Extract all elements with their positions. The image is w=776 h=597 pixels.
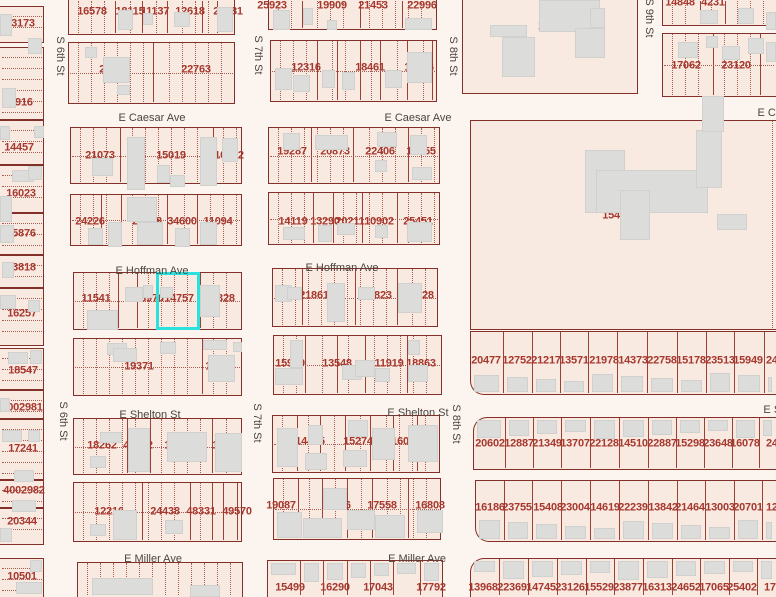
building bbox=[620, 190, 650, 240]
building bbox=[305, 453, 327, 470]
street-label: E Hoffman Ave bbox=[116, 265, 189, 277]
building bbox=[479, 520, 500, 539]
building bbox=[509, 420, 529, 436]
building bbox=[174, 12, 190, 27]
building bbox=[592, 374, 613, 392]
building bbox=[343, 450, 367, 467]
building bbox=[766, 42, 776, 62]
building bbox=[322, 70, 335, 88]
building bbox=[208, 355, 235, 382]
building bbox=[217, 7, 233, 32]
street-label: E Shelton St bbox=[119, 409, 180, 421]
building bbox=[748, 38, 764, 54]
building bbox=[722, 46, 740, 60]
parcel-label[interactable]: 15529 bbox=[584, 582, 614, 595]
parcel-label[interactable]: 14373 bbox=[618, 355, 648, 368]
parcel-label[interactable]: 13707 bbox=[560, 438, 590, 451]
building bbox=[157, 165, 170, 183]
building bbox=[100, 432, 122, 443]
lot-line bbox=[120, 128, 121, 182]
lot-line bbox=[2, 331, 42, 332]
street-label: E Shelton St bbox=[387, 407, 448, 419]
building bbox=[424, 563, 439, 581]
parcel-label[interactable]: 4002982 bbox=[3, 485, 44, 498]
selected-parcel-highlight bbox=[156, 272, 200, 330]
parcel-label[interactable]: 12316 bbox=[291, 62, 321, 75]
building bbox=[287, 287, 302, 300]
street-label: S 8th St bbox=[447, 36, 459, 75]
building bbox=[0, 225, 14, 243]
parcel-label[interactable]: 21217 bbox=[531, 355, 561, 368]
building bbox=[275, 68, 292, 90]
building bbox=[651, 378, 673, 392]
building bbox=[704, 561, 725, 574]
building bbox=[170, 175, 185, 187]
building bbox=[125, 287, 143, 302]
building bbox=[681, 525, 701, 539]
building bbox=[0, 14, 12, 36]
building bbox=[2, 430, 22, 442]
building bbox=[348, 420, 368, 437]
parcel-label[interactable]: 23648 bbox=[703, 438, 733, 451]
building bbox=[374, 563, 389, 576]
lot-line bbox=[2, 57, 42, 58]
building bbox=[536, 379, 556, 392]
lot-line bbox=[763, 1, 764, 24]
building bbox=[28, 430, 40, 442]
parcel-label[interactable]: 19087 bbox=[266, 500, 296, 513]
lot-line bbox=[395, 1, 396, 28]
building bbox=[565, 526, 586, 539]
parcel-label[interactable]: 15499 bbox=[275, 582, 305, 595]
building bbox=[283, 133, 300, 150]
building bbox=[113, 510, 137, 540]
building bbox=[271, 563, 296, 575]
parcel-label[interactable]: 22758 bbox=[647, 355, 677, 368]
building bbox=[160, 342, 176, 354]
parcel-label[interactable]: 12 bbox=[766, 502, 776, 515]
building bbox=[337, 223, 355, 235]
building bbox=[405, 18, 432, 30]
building bbox=[203, 340, 227, 350]
building bbox=[315, 135, 348, 150]
building bbox=[0, 528, 12, 542]
street-label: E Caesar Ave bbox=[757, 107, 776, 119]
parcel-label[interactable]: 17 bbox=[764, 582, 776, 595]
lot-line bbox=[145, 128, 146, 182]
parcel-label[interactable]: 13842 bbox=[648, 502, 678, 515]
parcel-label[interactable]: 15408 bbox=[533, 502, 563, 515]
lot-line bbox=[2, 68, 42, 69]
lot-line bbox=[353, 128, 354, 182]
parcel-label[interactable]: 15019 bbox=[156, 150, 186, 163]
building bbox=[736, 420, 755, 438]
building bbox=[117, 85, 130, 95]
building bbox=[398, 283, 422, 313]
lot-line bbox=[87, 563, 88, 595]
parcel-label[interactable]: 14510 bbox=[618, 438, 648, 451]
building bbox=[30, 350, 42, 364]
building bbox=[88, 228, 103, 245]
building bbox=[12, 500, 36, 512]
building bbox=[215, 433, 242, 472]
building bbox=[8, 352, 28, 364]
building bbox=[0, 398, 10, 412]
building bbox=[190, 585, 220, 597]
building bbox=[16, 582, 42, 594]
building bbox=[127, 137, 145, 190]
parcel-label[interactable]: 17065 bbox=[699, 582, 729, 595]
parcel-label[interactable]: 24652 bbox=[671, 582, 701, 595]
parcel-label[interactable]: 20602 bbox=[475, 438, 505, 451]
building bbox=[652, 523, 673, 539]
parcel-label[interactable]: 23120 bbox=[721, 60, 751, 73]
building bbox=[768, 377, 772, 392]
building bbox=[474, 375, 499, 392]
building bbox=[303, 518, 342, 538]
building bbox=[277, 428, 298, 467]
lot-line bbox=[291, 1, 292, 28]
parcel-label[interactable]: 34600 bbox=[167, 216, 197, 229]
building bbox=[532, 561, 553, 577]
parcel-label[interactable]: 16290 bbox=[320, 582, 350, 595]
building bbox=[28, 38, 42, 54]
parcel-label[interactable]: 22763 bbox=[181, 64, 211, 77]
parcel-label[interactable]: 16578 bbox=[77, 6, 107, 19]
parcel-label[interactable]: 23126 bbox=[555, 582, 585, 595]
building bbox=[358, 287, 375, 300]
building bbox=[537, 420, 557, 434]
parcel-label[interactable]: 20344 bbox=[7, 516, 37, 529]
parcel-label[interactable]: 4231 bbox=[701, 0, 725, 10]
parcel-label[interactable]: 15178 bbox=[676, 355, 706, 368]
parcel-label[interactable]: 17062 bbox=[671, 60, 701, 73]
building bbox=[590, 561, 610, 573]
building bbox=[377, 132, 397, 147]
lot-line bbox=[397, 193, 398, 243]
building bbox=[564, 381, 584, 392]
parcel-label[interactable]: 20477 bbox=[471, 355, 501, 368]
building bbox=[766, 522, 772, 539]
parcel-label[interactable]: 18547 bbox=[8, 365, 38, 378]
parcel-label[interactable]: 15949 bbox=[733, 355, 763, 368]
lot-line bbox=[165, 563, 166, 595]
building bbox=[127, 197, 157, 222]
building bbox=[676, 561, 696, 576]
building bbox=[103, 57, 130, 83]
parcel-label[interactable]: 13003 bbox=[705, 502, 735, 515]
street-label: E Caesar Ave bbox=[118, 112, 185, 124]
parcel-label[interactable]: 17792 bbox=[416, 582, 446, 595]
building bbox=[143, 13, 153, 25]
building bbox=[594, 528, 615, 539]
building bbox=[90, 524, 106, 536]
parcel-label[interactable]: 21453 bbox=[358, 0, 388, 13]
street-label: E Caesar Ave bbox=[384, 112, 451, 124]
building bbox=[647, 561, 668, 578]
building bbox=[143, 285, 153, 298]
building bbox=[290, 340, 303, 368]
building bbox=[407, 52, 432, 83]
building bbox=[710, 373, 730, 392]
lot-line bbox=[772, 121, 773, 328]
parcel-label[interactable]: 14619 bbox=[590, 502, 620, 515]
building bbox=[761, 561, 772, 579]
building bbox=[702, 96, 724, 132]
parcel-label[interactable]: 14745 bbox=[526, 582, 556, 595]
building bbox=[596, 170, 708, 213]
building bbox=[590, 8, 605, 28]
parcel-label[interactable]: 19909 bbox=[317, 0, 347, 13]
parcel-label[interactable]: 22369 bbox=[497, 582, 527, 595]
building bbox=[2, 262, 14, 278]
building bbox=[92, 578, 153, 595]
building bbox=[503, 561, 524, 579]
building bbox=[327, 20, 337, 30]
building bbox=[738, 520, 758, 539]
building bbox=[327, 563, 343, 580]
parcel-label[interactable]: 25402 bbox=[727, 582, 757, 595]
street-label: E Hoffman Ave bbox=[306, 262, 379, 274]
building bbox=[375, 368, 390, 382]
lot-line bbox=[80, 128, 81, 182]
building bbox=[222, 138, 238, 162]
building bbox=[372, 428, 395, 460]
lot-line bbox=[434, 193, 435, 243]
parcel-label[interactable]: 22887 bbox=[647, 438, 677, 451]
building bbox=[706, 36, 718, 48]
building bbox=[175, 228, 190, 247]
building bbox=[14, 470, 34, 482]
building bbox=[0, 196, 12, 222]
parcel-label[interactable]: 23513 bbox=[705, 355, 735, 368]
parcel-label[interactable]: 16078 bbox=[730, 438, 760, 451]
parcel-label[interactable]: 16313 bbox=[642, 582, 672, 595]
building bbox=[561, 561, 582, 575]
parcel-label[interactable]: 22996 bbox=[407, 0, 437, 13]
building bbox=[652, 420, 672, 435]
parcel-label[interactable]: 21349 bbox=[532, 438, 562, 451]
building bbox=[277, 512, 302, 538]
building bbox=[385, 70, 402, 88]
building bbox=[30, 560, 42, 572]
parcel-label[interactable]: 15298 bbox=[675, 438, 705, 451]
parcel-label[interactable]: 24 bbox=[766, 355, 776, 368]
lot-line bbox=[197, 128, 198, 182]
building bbox=[90, 456, 106, 468]
building bbox=[477, 420, 501, 438]
lot-line bbox=[2, 223, 42, 224]
building bbox=[618, 561, 639, 580]
lot-line bbox=[208, 1, 209, 33]
street-label: S 6th St bbox=[54, 36, 66, 75]
lot-line bbox=[161, 419, 162, 473]
street-label: E Shelton St bbox=[763, 404, 776, 416]
map-canvas[interactable]: 2317310916144571602325876238181625718547… bbox=[0, 0, 776, 597]
building bbox=[375, 160, 387, 172]
building bbox=[375, 515, 405, 538]
building bbox=[474, 561, 495, 572]
building bbox=[0, 295, 16, 309]
parcel-label[interactable]: 22128 bbox=[589, 438, 619, 451]
building bbox=[200, 285, 220, 317]
parcel-label[interactable]: 17043 bbox=[363, 582, 393, 595]
building bbox=[594, 420, 615, 439]
building bbox=[85, 47, 97, 58]
building bbox=[113, 348, 137, 362]
building bbox=[738, 375, 760, 392]
parcel-label[interactable]: 24 bbox=[766, 438, 776, 451]
parcel-label[interactable]: 19371 bbox=[124, 361, 154, 374]
parcel-label[interactable]: 22406 bbox=[365, 146, 395, 159]
parcel-label[interactable]: 11541 bbox=[82, 293, 111, 306]
parcel-label[interactable]: 23004 bbox=[560, 502, 590, 515]
building bbox=[408, 340, 420, 355]
building bbox=[733, 561, 753, 572]
building bbox=[417, 510, 443, 533]
building bbox=[92, 158, 113, 176]
building bbox=[275, 368, 303, 385]
building bbox=[407, 222, 432, 242]
parcel-label[interactable]: 14848 bbox=[665, 0, 695, 10]
building bbox=[575, 28, 605, 58]
building bbox=[565, 420, 586, 432]
building bbox=[28, 300, 40, 312]
parcel-label[interactable]: 13571 bbox=[559, 355, 589, 368]
building bbox=[738, 8, 754, 24]
building bbox=[766, 12, 776, 30]
building bbox=[118, 10, 133, 30]
building bbox=[408, 425, 438, 462]
building bbox=[680, 420, 700, 433]
parcel-label[interactable]: 17241 bbox=[8, 443, 38, 456]
parcel-label[interactable]: 24438 bbox=[150, 506, 180, 519]
lot-line bbox=[402, 1, 403, 28]
building bbox=[623, 420, 644, 437]
lot-line bbox=[83, 419, 84, 473]
building bbox=[293, 75, 310, 92]
building bbox=[137, 222, 163, 245]
building bbox=[709, 527, 730, 539]
street-label: E Miller Ave bbox=[388, 553, 446, 565]
street-label: S 8th St bbox=[450, 404, 462, 443]
parcel-label[interactable]: 12752 bbox=[502, 355, 532, 368]
parcel-label[interactable]: 49570 bbox=[222, 506, 252, 519]
parcel-label[interactable]: 22239 bbox=[618, 502, 648, 515]
building bbox=[200, 137, 217, 186]
lot-line bbox=[2, 380, 42, 381]
building bbox=[700, 10, 718, 24]
lot-line bbox=[347, 269, 348, 325]
lot-line bbox=[355, 269, 356, 325]
street-label: S 7th St bbox=[251, 403, 263, 442]
parcel-label[interactable]: 16186 bbox=[475, 502, 505, 515]
building bbox=[308, 425, 323, 445]
building bbox=[273, 10, 290, 30]
building bbox=[303, 8, 313, 25]
building bbox=[28, 166, 42, 180]
building bbox=[323, 488, 347, 510]
parcel-label[interactable]: 24226 bbox=[75, 216, 105, 229]
street-label: E Miller Ave bbox=[124, 553, 182, 565]
building bbox=[347, 510, 375, 530]
building bbox=[2, 88, 16, 108]
building bbox=[410, 135, 427, 155]
building bbox=[408, 365, 428, 382]
building bbox=[678, 42, 698, 58]
lot-line bbox=[230, 563, 231, 595]
building bbox=[318, 225, 332, 242]
building bbox=[200, 222, 217, 245]
lot-line bbox=[2, 112, 42, 113]
building bbox=[681, 380, 702, 392]
parcel-label[interactable]: 21464 bbox=[675, 502, 705, 515]
building bbox=[490, 25, 527, 37]
parcel-label[interactable]: 21861 bbox=[299, 290, 329, 303]
parcel-label[interactable]: 13968 bbox=[468, 582, 498, 595]
street-label: S 7th St bbox=[252, 35, 264, 74]
building bbox=[708, 420, 728, 431]
lot-line bbox=[178, 563, 179, 595]
building bbox=[304, 563, 319, 582]
parcel-label[interactable]: 23755 bbox=[502, 502, 532, 515]
building bbox=[342, 72, 355, 90]
building bbox=[508, 522, 528, 539]
building bbox=[623, 521, 644, 539]
building bbox=[165, 520, 183, 534]
building bbox=[327, 283, 345, 322]
building bbox=[167, 432, 207, 462]
parcel-label[interactable]: 48331 bbox=[186, 506, 216, 519]
building bbox=[0, 126, 10, 140]
building bbox=[108, 222, 122, 247]
building bbox=[375, 225, 388, 238]
building bbox=[507, 377, 528, 392]
building bbox=[536, 524, 557, 539]
building bbox=[763, 420, 772, 436]
street-label: S 9th St bbox=[643, 0, 655, 38]
building bbox=[128, 428, 150, 472]
building bbox=[34, 126, 44, 138]
building bbox=[351, 563, 366, 578]
building bbox=[502, 37, 535, 77]
building bbox=[696, 130, 722, 188]
parcel-label[interactable]: 21978 bbox=[589, 355, 619, 368]
parcel-label[interactable]: 23877 bbox=[613, 582, 643, 595]
lot-line bbox=[2, 79, 42, 80]
building bbox=[87, 310, 118, 330]
lot-line bbox=[311, 128, 312, 182]
lot-line bbox=[764, 332, 765, 393]
lot-line bbox=[2, 462, 42, 463]
street-label: S 6th St bbox=[57, 401, 69, 440]
building bbox=[355, 360, 375, 377]
parcel-label[interactable]: 15274 bbox=[343, 436, 373, 449]
parcel-label[interactable]: 12887 bbox=[504, 438, 534, 451]
parcel-label[interactable]: 14457 bbox=[4, 142, 34, 155]
building bbox=[412, 167, 432, 180]
lot-line bbox=[2, 245, 42, 246]
building bbox=[283, 227, 305, 240]
building bbox=[233, 342, 242, 352]
building bbox=[717, 214, 747, 230]
parcel-label[interactable]: 20701 bbox=[733, 502, 763, 515]
parcel-label[interactable]: 18461 bbox=[355, 62, 385, 75]
building bbox=[621, 376, 643, 392]
